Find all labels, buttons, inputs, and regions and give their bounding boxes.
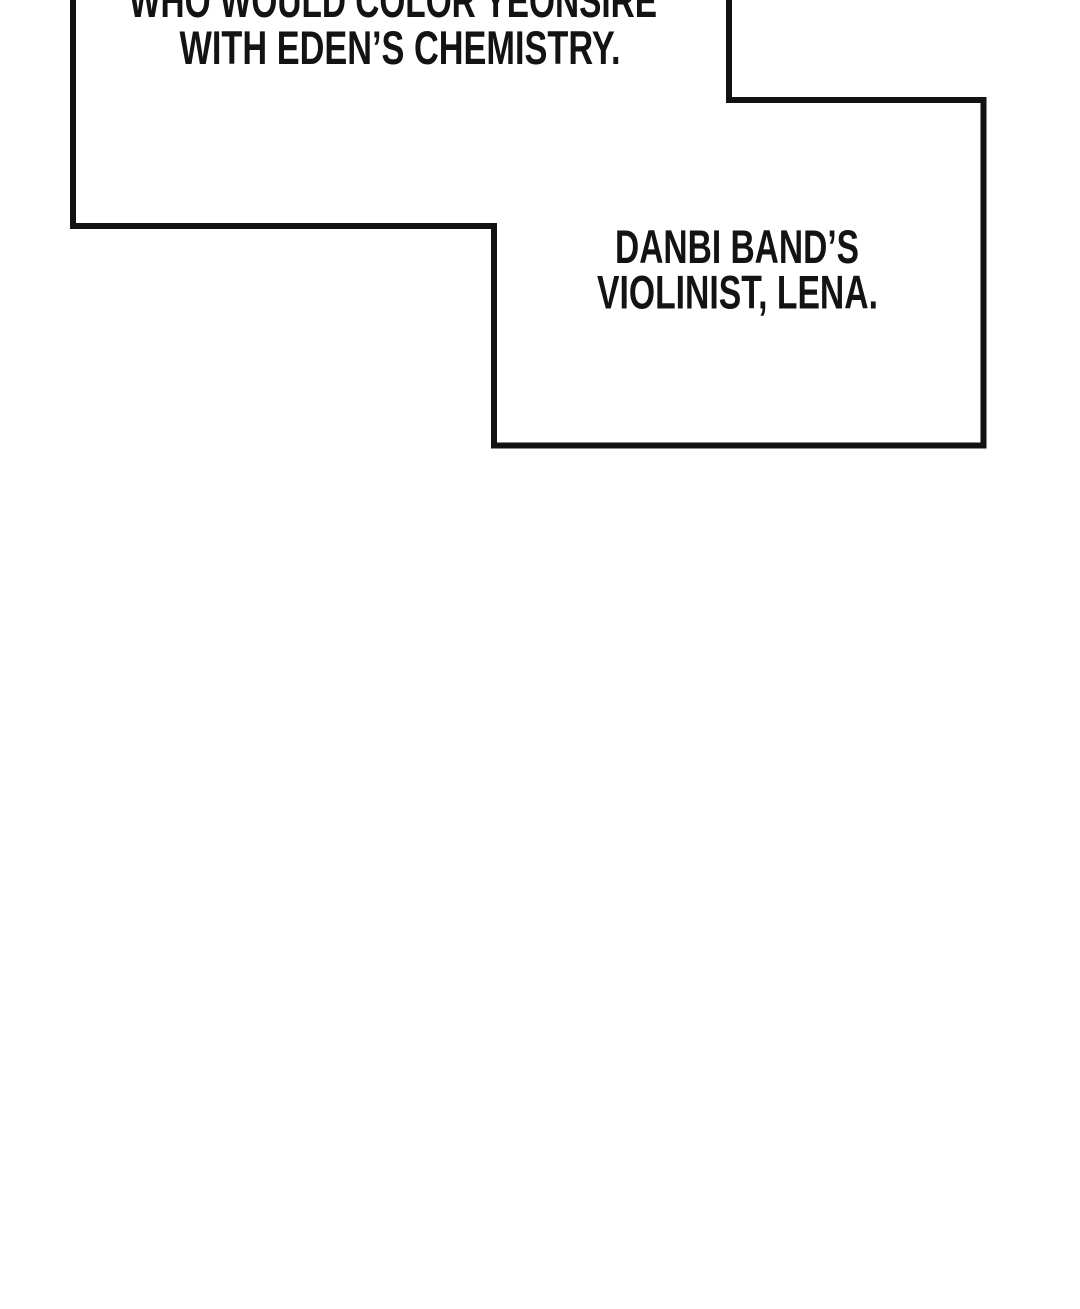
svg-text:WITH EDEN’S CHEMISTRY.: WITH EDEN’S CHEMISTRY. — [180, 21, 621, 74]
svg-text:VIOLINIST, LENA.: VIOLINIST, LENA. — [597, 266, 878, 319]
